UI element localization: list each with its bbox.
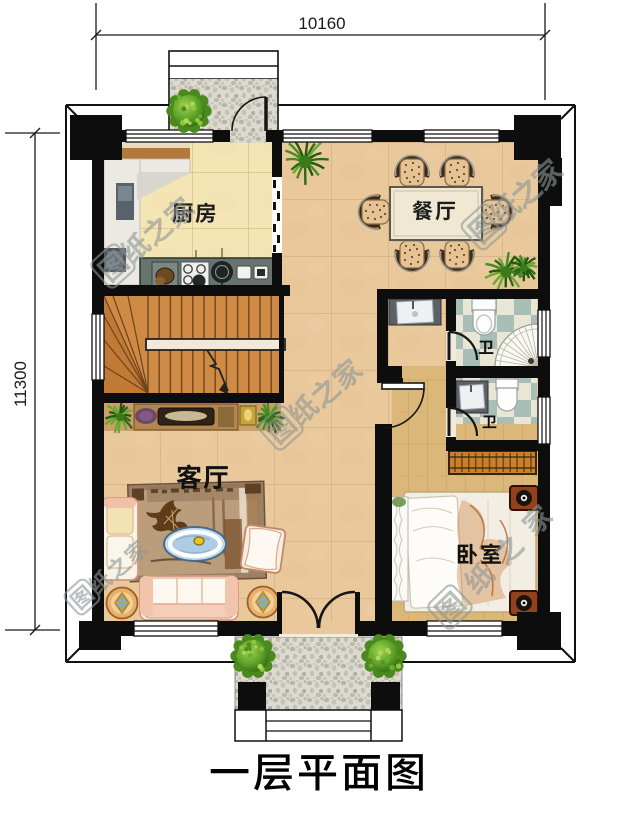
svg-text:11300: 11300 (11, 361, 30, 407)
svg-text:10160: 10160 (298, 14, 345, 33)
